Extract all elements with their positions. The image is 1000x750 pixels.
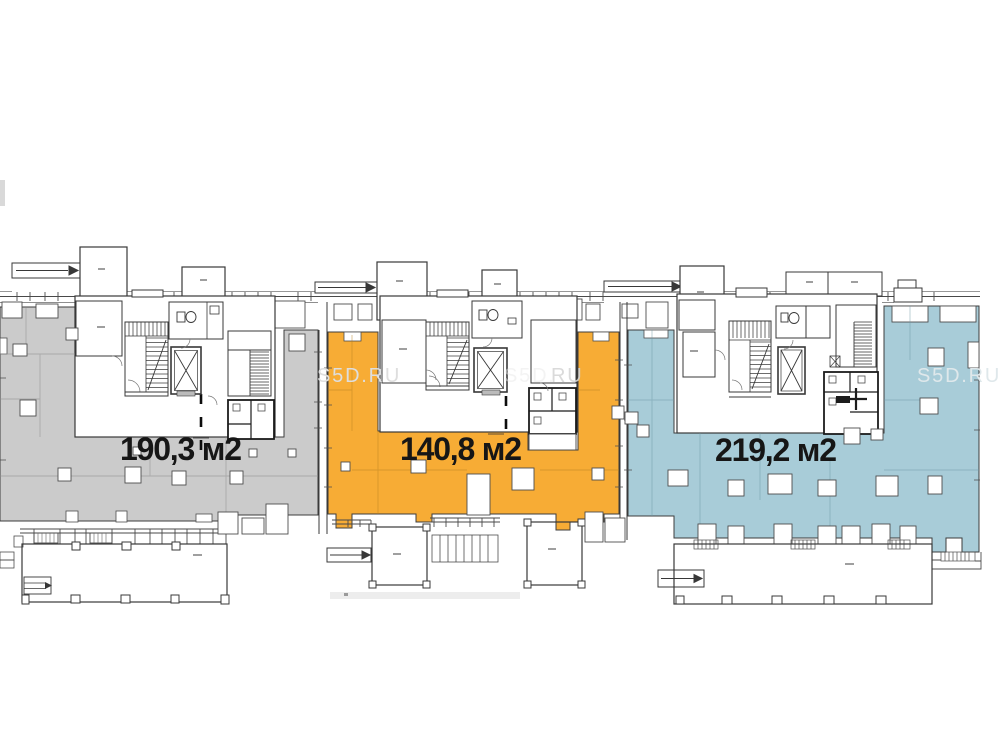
svg-text:S5D.: S5D. (504, 365, 556, 387)
svg-text:140,8 м2: 140,8 м2 (400, 431, 521, 467)
svg-text:RU: RU (551, 365, 584, 387)
svg-text:S5D.RU: S5D.RU (317, 365, 401, 387)
svg-text:219,2 м2: 219,2 м2 (715, 432, 836, 468)
svg-text:190,3 м2: 190,3 м2 (120, 431, 241, 467)
svg-text:S5D.RU: S5D.RU (917, 365, 1000, 387)
